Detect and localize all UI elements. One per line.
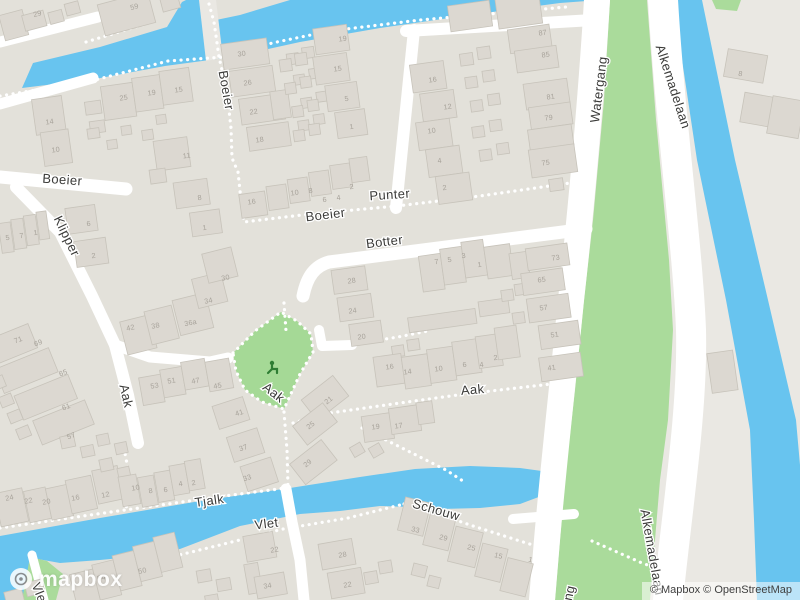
house-number: 11 [182,151,191,161]
house-number: 18 [255,134,265,144]
street-label-vlet: Vlet [254,515,280,533]
house-number: 10 [434,363,444,373]
house-number: 19 [338,33,348,43]
house-number: 53 [150,380,160,390]
house-number: 87 [538,27,548,37]
house-number: 19 [147,87,157,97]
mapbox-logo-icon [8,566,34,592]
mapbox-logo-text: mapbox [39,569,123,590]
house-number: 51 [167,375,177,385]
house-number: 10 [290,187,300,197]
house-number: 47 [191,375,201,385]
house-number: 22 [249,106,259,116]
house-number: 24 [348,305,358,315]
house-number: 10 [131,482,141,492]
street-label-boeier: Boeier [42,171,83,189]
house-number: 45 [213,380,223,390]
house-number: 51 [550,329,560,339]
house-number: 57 [539,302,549,312]
house-number: 20 [357,331,367,341]
house-number: 14 [403,366,413,376]
street-label-punter: Punter [369,186,411,204]
house-number: 10 [51,144,61,154]
house-number: 85 [541,49,551,59]
map-viewport[interactable]: 2959141025191511816257130262218161086421… [0,0,800,600]
house-number: 28 [347,275,357,285]
map-attribution[interactable]: © Mapbox © OpenStreetMap [642,582,800,600]
house-number: 41 [547,362,557,372]
house-number: 65 [537,274,547,284]
road-schouw-stub [513,514,574,519]
house-number: 25 [119,92,129,102]
house-number: 15 [333,63,343,73]
house-number: 22 [343,579,353,589]
house-number: 16 [247,196,257,206]
house-number: 28 [338,549,348,559]
house-number: 22 [270,544,280,554]
map-svg[interactable]: 2959141025191511816257130262218161086421… [0,0,800,600]
house-number: 17 [394,420,404,430]
house-number: 16 [385,361,395,371]
street-label-aak: Aak [460,381,485,398]
mapbox-logo[interactable]: mapbox [8,566,123,592]
house-number: 73 [551,252,561,262]
house-number: 10 [427,125,437,135]
house-number: 15 [174,84,184,94]
house-number: 16 [428,74,438,84]
house-number: 81 [546,91,556,101]
house-number: 26 [243,77,253,87]
house-number: 79 [544,112,554,122]
house-number: 30 [237,48,247,58]
house-number: 19 [371,421,381,431]
house-number: 12 [443,101,453,111]
house-number: 34 [263,580,273,590]
house-number: 75 [541,157,551,167]
house-number: 14 [45,116,55,126]
